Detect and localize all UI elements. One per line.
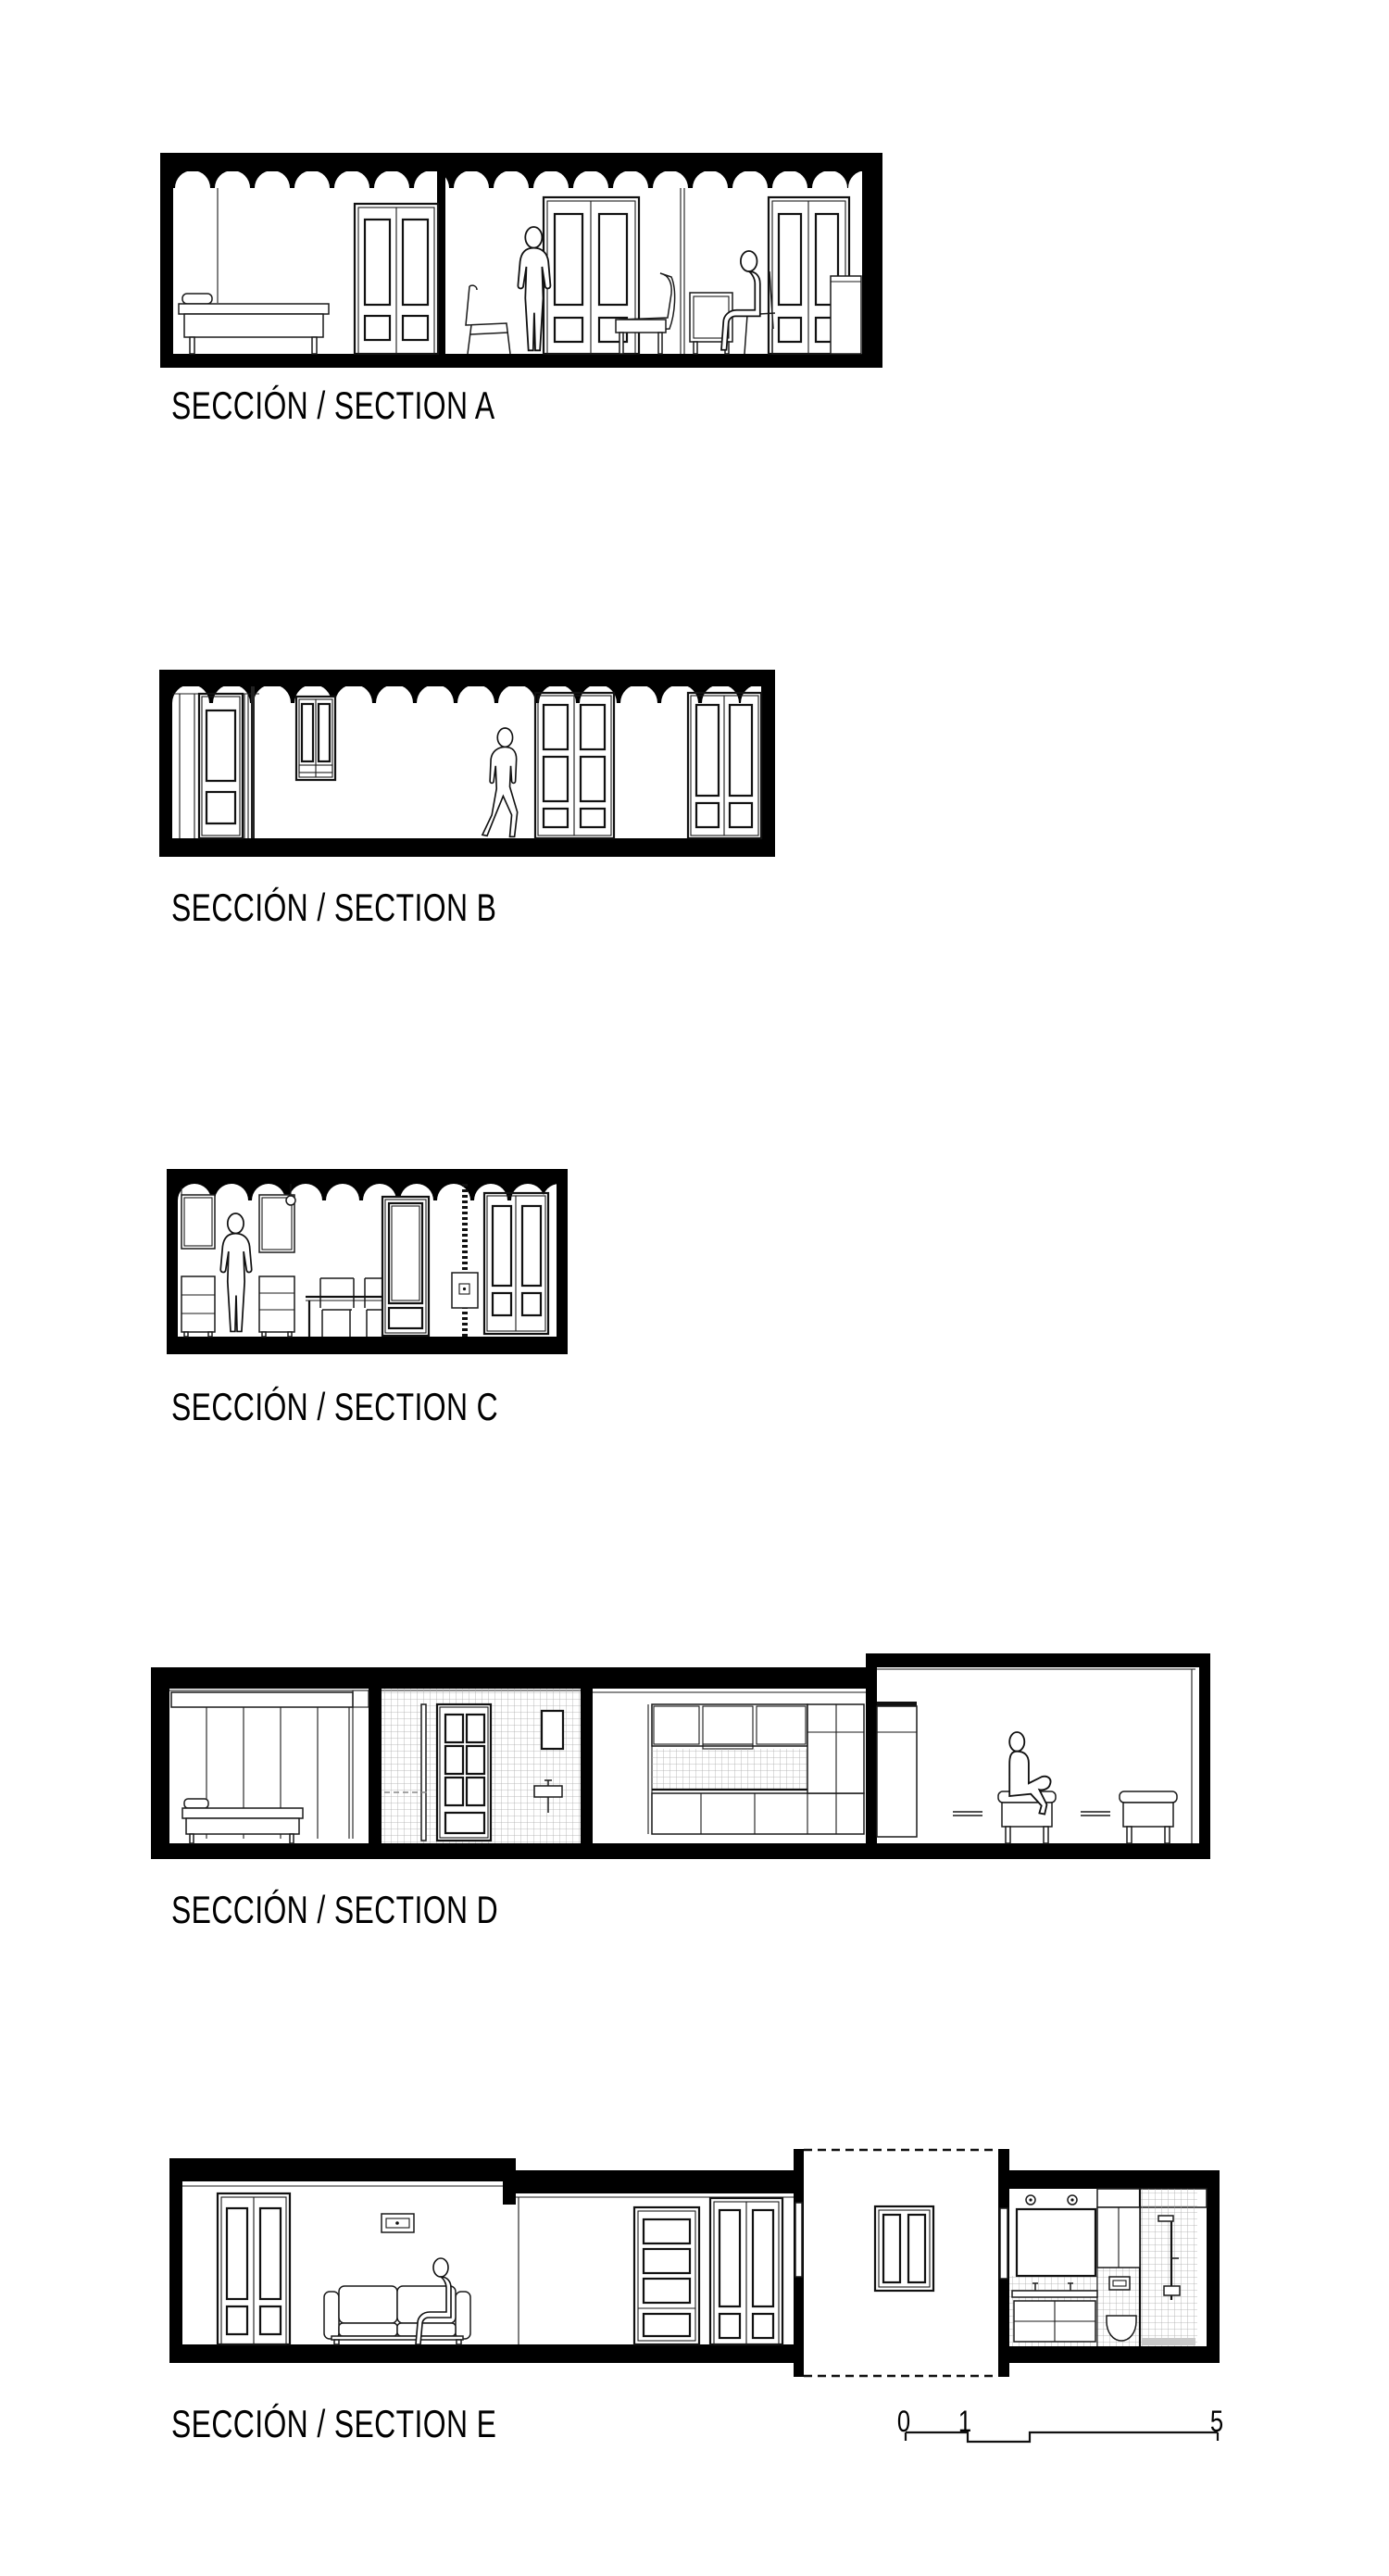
bathroom xyxy=(1009,2170,1220,2363)
section-a-drawing xyxy=(160,153,882,368)
tall-cabinet xyxy=(807,1704,864,1793)
hall xyxy=(634,2198,782,2344)
bed xyxy=(179,188,329,354)
louvre-door xyxy=(634,2207,699,2344)
vanity xyxy=(1012,2283,1097,2342)
section-b-caption: SECCIÓN / SECTION B xyxy=(171,887,496,928)
cabinet xyxy=(831,276,861,354)
section-walls xyxy=(169,2158,804,2363)
bathroom xyxy=(382,1689,581,1843)
living-room xyxy=(218,2193,470,2344)
french-door xyxy=(710,2198,782,2344)
glass-screen xyxy=(421,1704,426,1841)
section-c-drawing xyxy=(167,1169,568,1354)
scale-bar-rule xyxy=(896,2427,1230,2447)
section-c-caption: SECCIÓN / SECTION C xyxy=(171,1387,498,1427)
section-e-caption: SECCIÓN / SECTION E xyxy=(171,2404,496,2444)
kitchen xyxy=(648,1704,864,1834)
base-cabinet xyxy=(181,1276,215,1337)
door-leaf xyxy=(1000,2208,1007,2279)
floating-shelf xyxy=(953,1812,982,1816)
shower-tray xyxy=(1142,2338,1195,2345)
tall-cabinet xyxy=(877,1702,917,1837)
casement-window xyxy=(296,697,335,780)
mirror xyxy=(1017,2209,1095,2276)
glazed-door xyxy=(382,1197,429,1336)
section-a-caption: SECCIÓN / SECTION A xyxy=(171,385,495,426)
upper-cabinets xyxy=(652,1704,807,1749)
bedroom xyxy=(877,1702,1177,1843)
ottoman xyxy=(1120,1791,1177,1843)
bed xyxy=(182,1799,303,1843)
architectural-sections-sheet: SECCIÓN / SECTION A xyxy=(0,0,1389,2576)
standing-person-figure xyxy=(220,1213,251,1331)
shaft-window xyxy=(875,2206,933,2291)
side-chair xyxy=(466,285,510,354)
ottoman xyxy=(998,1791,1056,1843)
french-door xyxy=(355,204,438,354)
wall-cabinet xyxy=(181,1187,215,1249)
backsplash-tiles xyxy=(652,1749,807,1790)
french-door xyxy=(218,2193,290,2344)
section-d-drawing xyxy=(151,1653,1210,1859)
door-leaf xyxy=(795,2203,802,2277)
tall-cabinet xyxy=(259,1184,295,1337)
section-b-drawing xyxy=(159,670,775,857)
base-cabinets xyxy=(652,1793,864,1834)
standing-person-figure xyxy=(518,227,550,350)
floating-shelf xyxy=(1081,1812,1110,1816)
side-cabinet xyxy=(1097,2207,1140,2268)
walking-person-figure xyxy=(482,728,518,836)
section-e-drawing xyxy=(169,2147,1220,2379)
mirror xyxy=(542,1711,563,1749)
section-d-caption: SECCIÓN / SECTION D xyxy=(171,1890,498,1930)
light-shaft xyxy=(794,2149,1009,2377)
pulley-icon xyxy=(286,1196,295,1205)
wall-switch xyxy=(382,2214,414,2232)
glazed-door xyxy=(437,1704,491,1841)
